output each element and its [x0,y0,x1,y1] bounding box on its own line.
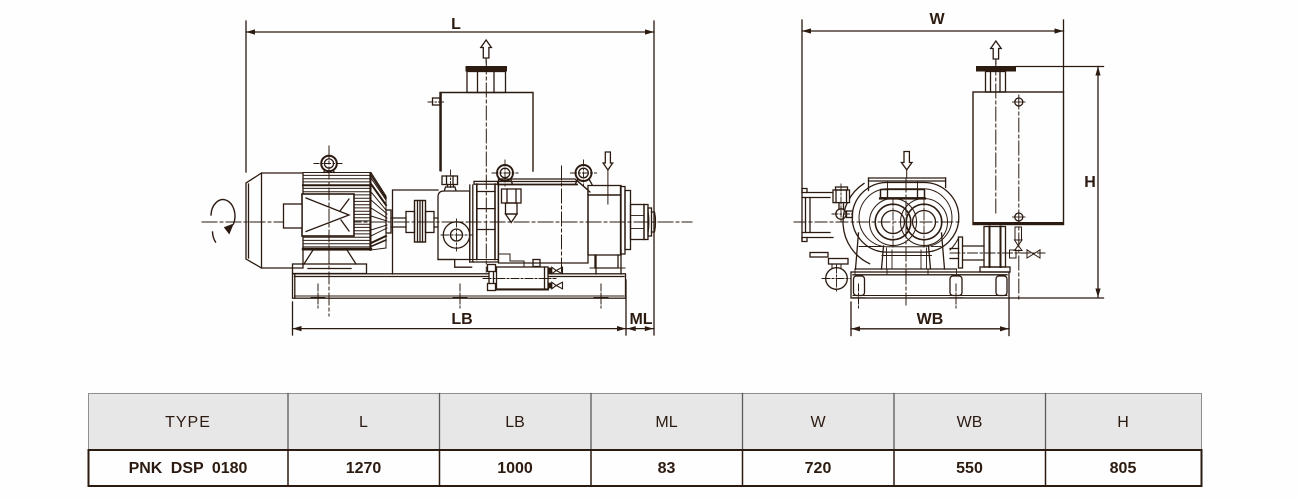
svg-text:WB: WB [957,414,983,431]
svg-text:1000: 1000 [497,460,533,477]
svg-text:PNK DSP 0180: PNK DSP 0180 [129,460,248,477]
svg-text:LB: LB [451,311,472,328]
svg-text:720: 720 [805,460,832,477]
svg-text:83: 83 [658,460,676,477]
svg-text:805: 805 [1110,460,1137,477]
svg-text:W: W [810,414,826,431]
svg-text:L: L [451,16,461,33]
svg-text:H: H [1117,414,1129,431]
svg-text:L: L [359,414,368,431]
svg-text:LB: LB [505,414,525,431]
svg-text:1270: 1270 [346,460,382,477]
svg-text:W: W [929,11,945,28]
svg-text:550: 550 [956,460,983,477]
svg-text:H: H [1084,174,1096,191]
svg-text:ML: ML [629,311,652,328]
svg-text:ML: ML [655,414,677,431]
svg-text:WB: WB [917,311,944,328]
svg-text:TYPE: TYPE [165,414,211,431]
